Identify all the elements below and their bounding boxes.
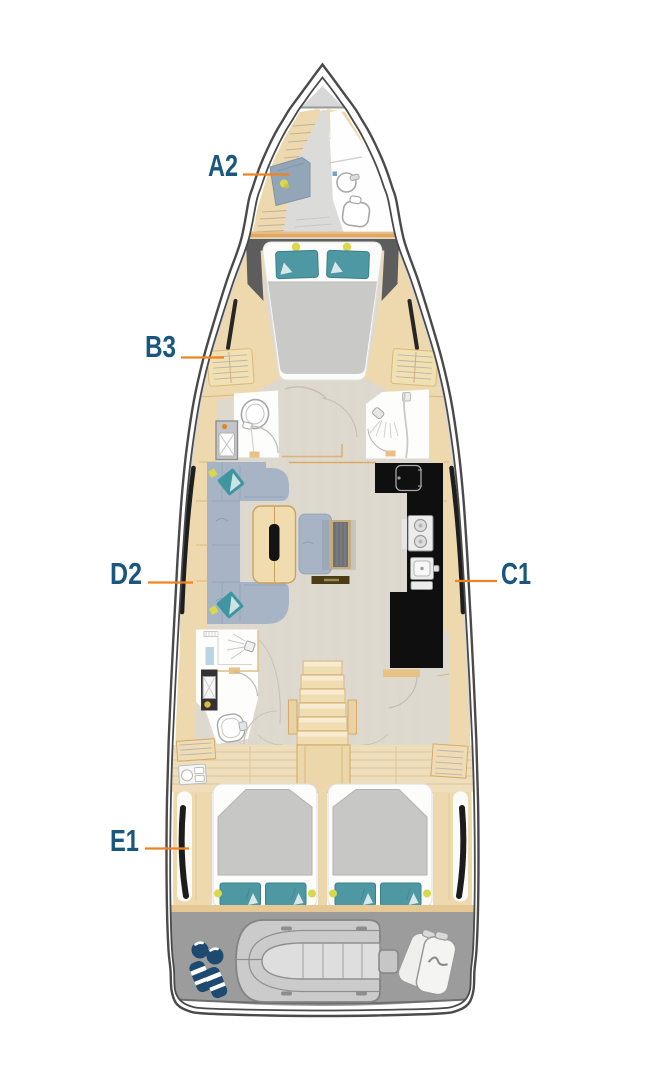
svg-text:D2: D2: [110, 556, 142, 591]
svg-text:E1: E1: [110, 823, 139, 858]
svg-text:C1: C1: [501, 556, 531, 591]
svg-text:B3: B3: [145, 329, 176, 364]
svg-text:A2: A2: [208, 148, 238, 183]
